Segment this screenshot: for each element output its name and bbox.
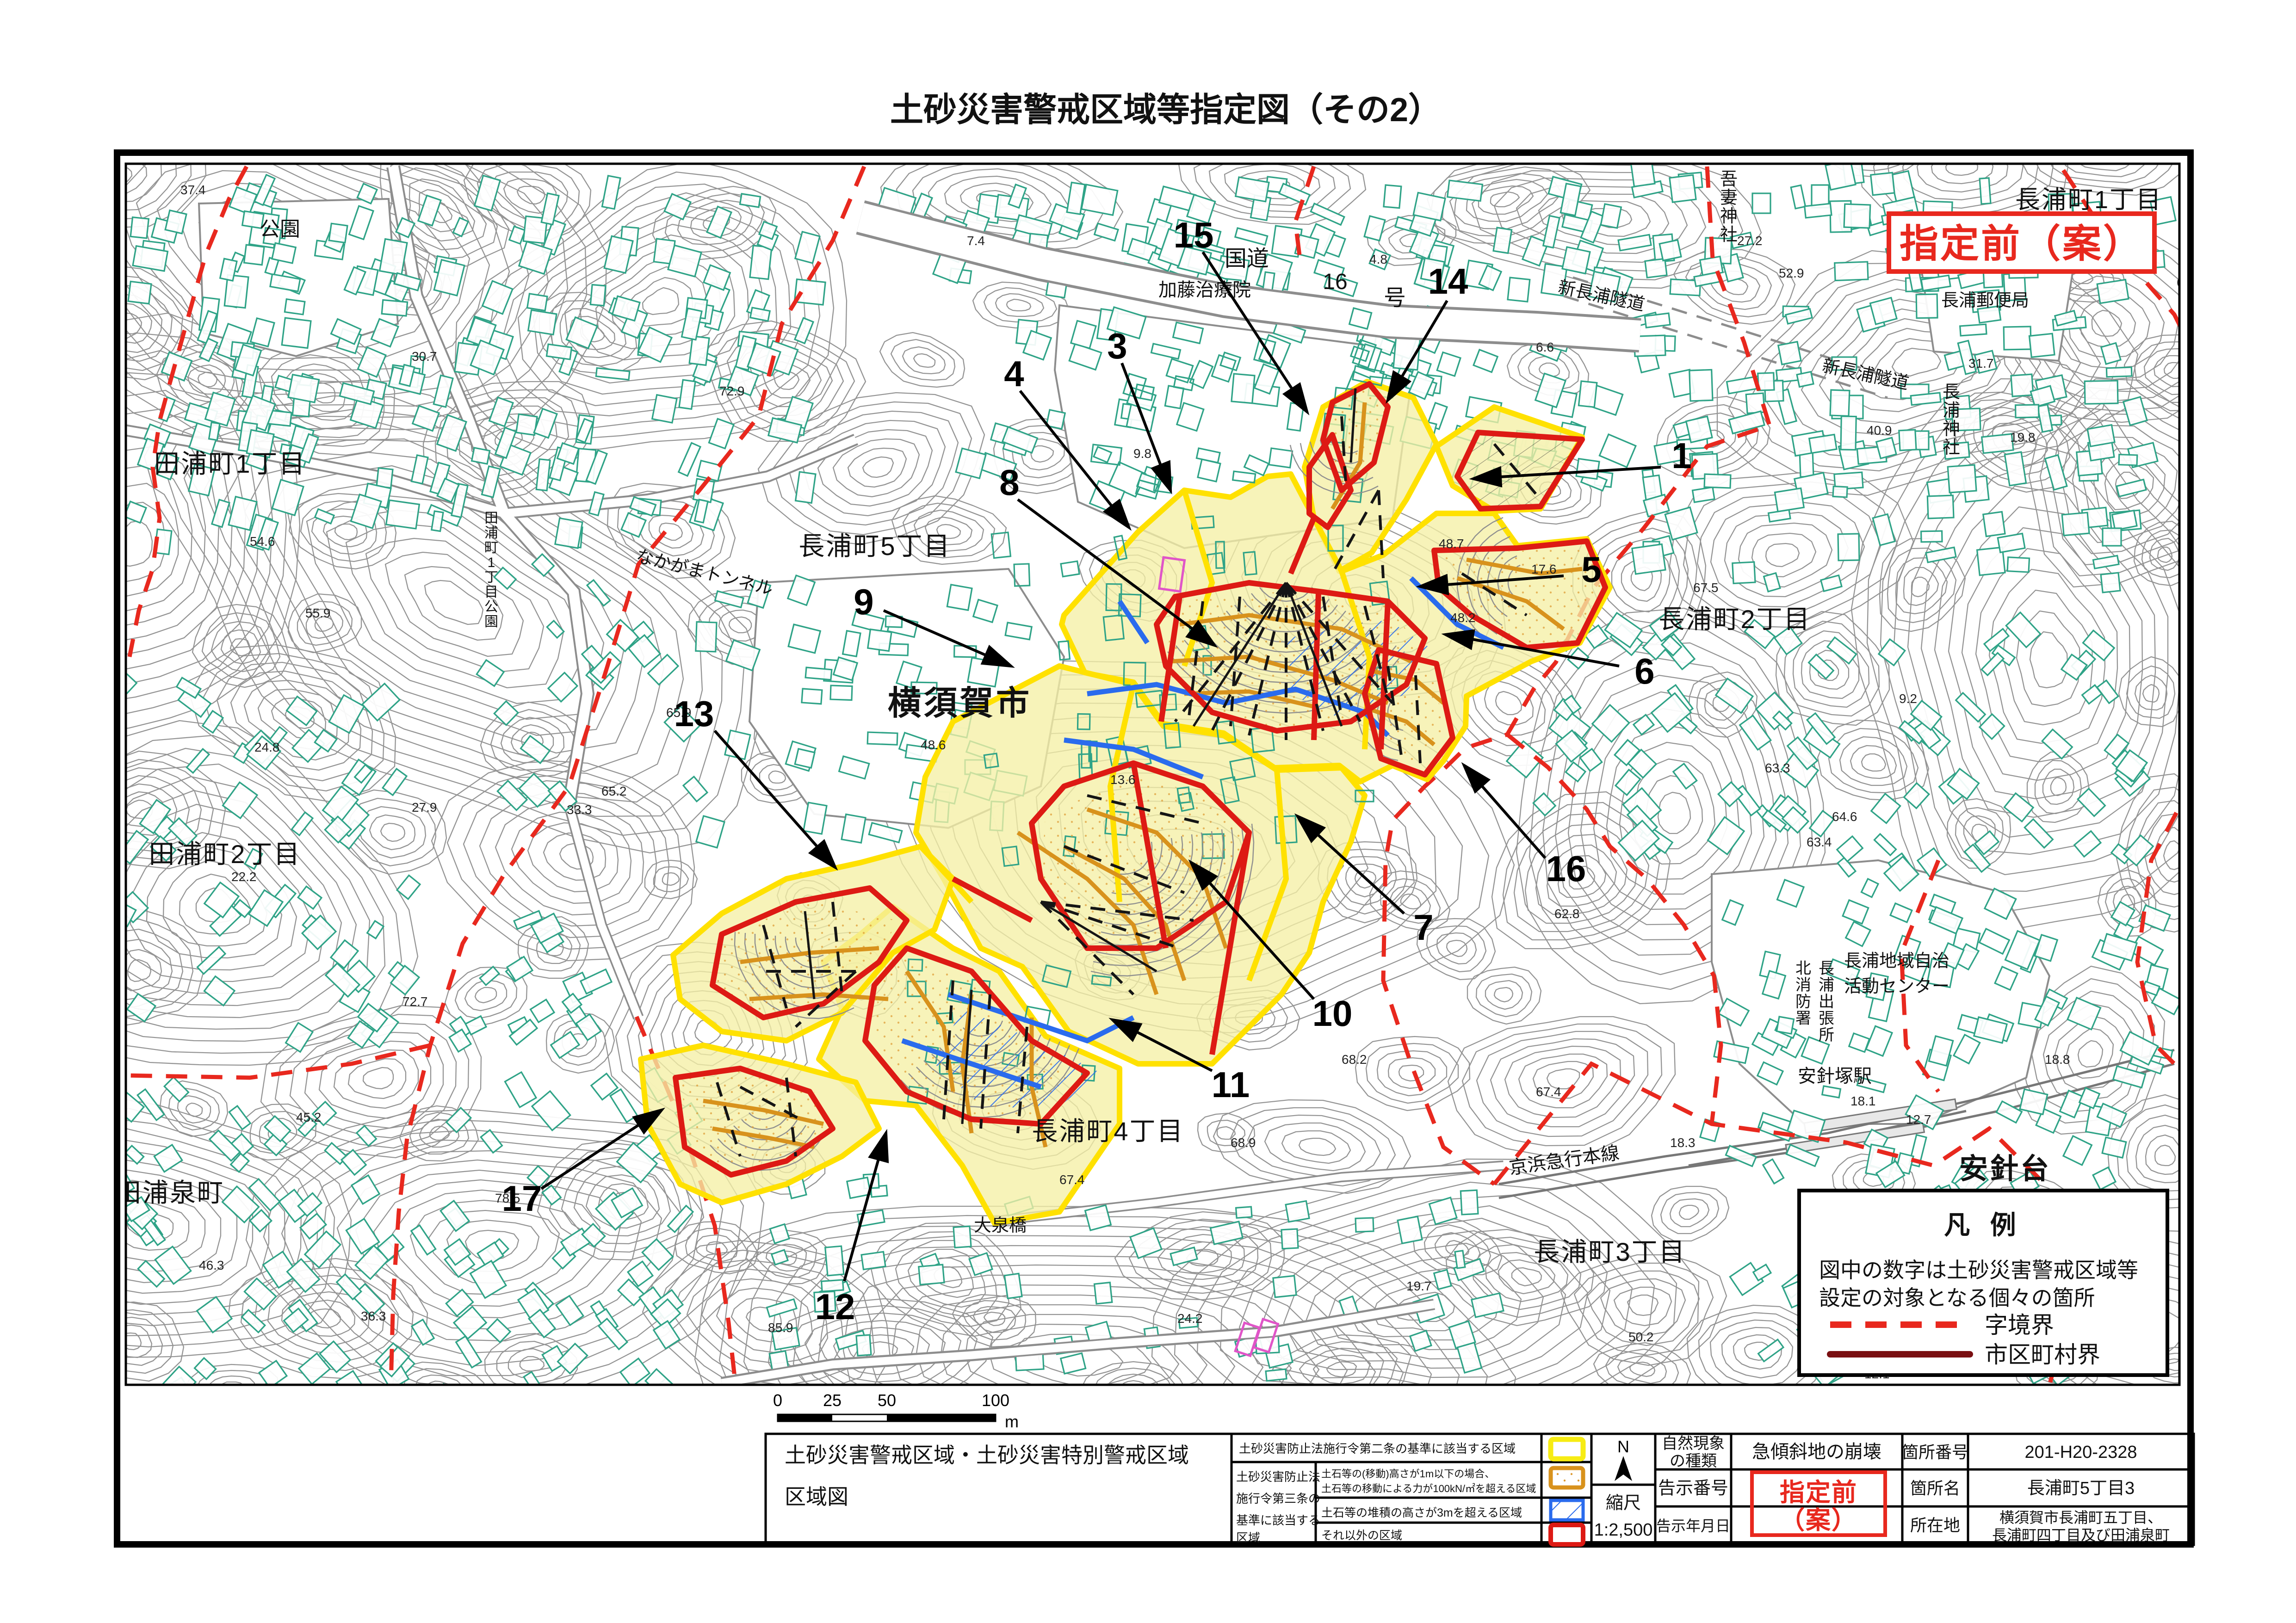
svg-text:区域: 区域 — [1236, 1531, 1260, 1545]
svg-text:6.6: 6.6 — [1536, 340, 1554, 354]
svg-text:63.4: 63.4 — [1807, 835, 1832, 849]
svg-text:48.6: 48.6 — [921, 738, 946, 752]
svg-text:8: 8 — [999, 462, 1019, 503]
svg-text:100: 100 — [982, 1391, 1009, 1410]
svg-text:65.2: 65.2 — [601, 784, 627, 798]
svg-text:19.8: 19.8 — [2010, 430, 2036, 444]
svg-text:62.8: 62.8 — [1554, 907, 1580, 921]
svg-text:63.3: 63.3 — [1765, 761, 1790, 775]
svg-text:田浦町1丁目: 田浦町1丁目 — [154, 449, 306, 478]
svg-text:長浦町四丁目及び田浦泉町: 長浦町四丁目及び田浦泉町 — [1992, 1527, 2170, 1543]
svg-text:72.7: 72.7 — [402, 994, 428, 1009]
svg-text:7.4: 7.4 — [967, 234, 985, 248]
svg-text:告示番号: 告示番号 — [1658, 1479, 1728, 1498]
svg-text:N: N — [1617, 1437, 1629, 1456]
svg-text:55.9: 55.9 — [305, 606, 331, 620]
svg-text:27.9: 27.9 — [412, 800, 437, 815]
svg-text:施行令第三条の: 施行令第三条の — [1236, 1492, 1320, 1506]
svg-text:市区町村界: 市区町村界 — [1985, 1342, 2100, 1368]
svg-text:横須賀市: 横須賀市 — [888, 685, 1032, 722]
svg-text:37.4: 37.4 — [180, 183, 206, 197]
svg-text:加藤治療院: 加藤治療院 — [1158, 280, 1251, 300]
svg-text:40.9: 40.9 — [1867, 423, 1892, 438]
svg-text:33.3: 33.3 — [567, 802, 592, 817]
svg-text:4.8: 4.8 — [1369, 252, 1387, 266]
svg-text:0: 0 — [773, 1391, 782, 1410]
svg-text:4: 4 — [1004, 353, 1024, 394]
svg-text:長浦町1丁目: 長浦町1丁目 — [2015, 186, 2162, 214]
svg-text:9: 9 — [854, 581, 873, 622]
svg-text:54.6: 54.6 — [250, 534, 275, 549]
svg-text:48.2: 48.2 — [1450, 611, 1476, 625]
svg-text:27.2: 27.2 — [1737, 234, 1763, 248]
svg-text:12.7: 12.7 — [1906, 1112, 1931, 1127]
svg-text:9.8: 9.8 — [1133, 446, 1151, 461]
svg-text:土砂災害防止法施行令第二条の基準に該当する区域: 土砂災害防止法施行令第二条の基準に該当する区域 — [1239, 1442, 1516, 1456]
svg-text:48.7: 48.7 — [1439, 537, 1464, 551]
svg-text:長浦町5丁目: 長浦町5丁目 — [798, 531, 951, 561]
svg-text:北消防署: 北消防署 — [1795, 960, 1811, 1027]
svg-text:18.8: 18.8 — [2045, 1052, 2070, 1067]
svg-text:3: 3 — [1107, 326, 1127, 366]
svg-text:31.7: 31.7 — [1968, 356, 1994, 370]
svg-text:m: m — [1005, 1412, 1019, 1431]
svg-text:16: 16 — [1546, 848, 1586, 889]
svg-text:7: 7 — [1413, 907, 1433, 948]
svg-text:公園: 公園 — [260, 218, 300, 241]
svg-text:土石等の堆積の高さが3mを超える区域: 土石等の堆積の高さが3mを超える区域 — [1321, 1506, 1522, 1519]
svg-text:長浦出張所: 長浦出張所 — [1819, 960, 1834, 1044]
svg-text:土石等の移動による力が100kN/㎡を超える区域: 土石等の移動による力が100kN/㎡を超える区域 — [1321, 1483, 1536, 1494]
svg-text:土砂災害警戒区域・土砂災害特別警戒区域: 土砂災害警戒区域・土砂災害特別警戒区域 — [785, 1443, 1189, 1467]
svg-text:図中の数字は土砂災害警戒区域等: 図中の数字は土砂災害警戒区域等 — [1819, 1258, 2138, 1282]
svg-text:長浦町2丁目: 長浦町2丁目 — [1659, 605, 1811, 634]
svg-text:長浦地域自治: 長浦地域自治 — [1844, 951, 1949, 971]
svg-text:52.9: 52.9 — [1779, 266, 1804, 280]
svg-text:85.9: 85.9 — [768, 1321, 793, 1335]
svg-text:長浦郵便局: 長浦郵便局 — [1941, 291, 2029, 310]
svg-text:自然現象: 自然現象 — [1662, 1435, 1725, 1452]
svg-text:田浦町1丁目公園: 田浦町1丁目公園 — [484, 511, 498, 629]
svg-text:1:2,500: 1:2,500 — [1594, 1520, 1653, 1540]
svg-text:安針塚駅: 安針塚駅 — [1798, 1066, 1872, 1086]
svg-text:凡 例: 凡 例 — [1944, 1210, 2023, 1240]
svg-text:田浦町2丁目: 田浦町2丁目 — [149, 839, 301, 869]
svg-text:12: 12 — [815, 1286, 855, 1327]
svg-text:5: 5 — [1581, 549, 1601, 590]
svg-text:10: 10 — [1312, 993, 1353, 1034]
svg-text:50: 50 — [878, 1391, 896, 1410]
svg-text:25: 25 — [823, 1391, 842, 1410]
svg-text:指定前（案）: 指定前（案） — [1900, 222, 2144, 265]
svg-text:201-H20-2328: 201-H20-2328 — [2025, 1443, 2137, 1462]
svg-text:長浦町3丁目: 長浦町3丁目 — [1534, 1237, 1686, 1266]
svg-text:長浦町5丁目3: 長浦町5丁目3 — [2027, 1479, 2135, 1498]
svg-text:安針台: 安針台 — [1959, 1153, 2051, 1185]
svg-text:吾妻神社: 吾妻神社 — [1720, 170, 1738, 245]
svg-text:号: 号 — [1384, 286, 1406, 310]
svg-text:基準に該当する: 基準に該当する — [1236, 1513, 1320, 1527]
svg-text:13.6: 13.6 — [1110, 772, 1136, 787]
svg-text:大泉橋: 大泉橋 — [974, 1216, 1027, 1235]
svg-text:それ以外の区域: それ以外の区域 — [1321, 1529, 1402, 1542]
svg-text:告示年月日: 告示年月日 — [1656, 1518, 1730, 1534]
svg-text:67.4: 67.4 — [1536, 1085, 1561, 1099]
svg-text:長浦神社: 長浦神社 — [1943, 383, 1960, 457]
svg-text:活動センター: 活動センター — [1844, 977, 1949, 996]
svg-text:区域図: 区域図 — [785, 1485, 848, 1509]
svg-text:24.2: 24.2 — [1177, 1311, 1203, 1326]
svg-text:田浦泉町: 田浦泉町 — [115, 1178, 224, 1207]
svg-text:9.2: 9.2 — [1899, 691, 1917, 706]
svg-text:の種類: の種類 — [1670, 1452, 1717, 1470]
svg-text:急傾斜地の崩壊: 急傾斜地の崩壊 — [1752, 1442, 1881, 1462]
svg-text:67.4: 67.4 — [1059, 1173, 1085, 1187]
svg-text:45.2: 45.2 — [296, 1110, 322, 1124]
svg-text:1: 1 — [1671, 435, 1691, 476]
svg-text:11: 11 — [1212, 1064, 1250, 1105]
svg-text:設定の対象となる個々の箇所: 設定の対象となる個々の箇所 — [1819, 1286, 2095, 1310]
svg-text:19.7: 19.7 — [1406, 1279, 1432, 1293]
svg-text:（案）: （案） — [1780, 1506, 1857, 1534]
svg-text:50.2: 50.2 — [1628, 1330, 1654, 1344]
svg-text:字境界: 字境界 — [1985, 1312, 2054, 1338]
svg-text:16: 16 — [1323, 270, 1347, 294]
svg-text:64.6: 64.6 — [1832, 809, 1857, 824]
svg-text:長浦町4丁目: 長浦町4丁目 — [1032, 1117, 1184, 1146]
svg-text:15: 15 — [1174, 215, 1214, 255]
svg-text:土砂災害防止法: 土砂災害防止法 — [1236, 1470, 1320, 1484]
svg-text:土石等の(移動)高さが1m以下の場合、: 土石等の(移動)高さが1m以下の場合、 — [1321, 1468, 1495, 1480]
svg-text:土砂災害警戒区域等指定図（その2）: 土砂災害警戒区域等指定図（その2） — [890, 92, 1442, 129]
svg-text:国道: 国道 — [1225, 247, 1269, 271]
svg-text:72.9: 72.9 — [719, 384, 745, 398]
svg-text:所在地: 所在地 — [1910, 1516, 1960, 1535]
svg-text:24.8: 24.8 — [254, 740, 280, 754]
svg-text:箇所番号: 箇所番号 — [1902, 1443, 1968, 1462]
svg-text:68.2: 68.2 — [1342, 1052, 1367, 1067]
svg-text:36.3: 36.3 — [361, 1309, 386, 1323]
svg-text:縮尺: 縮尺 — [1606, 1493, 1641, 1513]
svg-text:13: 13 — [674, 693, 714, 734]
svg-text:17: 17 — [502, 1178, 542, 1219]
svg-text:18.3: 18.3 — [1670, 1135, 1696, 1150]
svg-text:46.3: 46.3 — [199, 1258, 224, 1272]
svg-text:6: 6 — [1634, 651, 1654, 691]
svg-text:68.9: 68.9 — [1231, 1135, 1256, 1150]
svg-text:箇所名: 箇所名 — [1910, 1479, 1960, 1498]
svg-text:14: 14 — [1428, 261, 1468, 302]
svg-text:22.2: 22.2 — [231, 870, 257, 884]
svg-text:30.7: 30.7 — [412, 349, 437, 364]
svg-text:67.5: 67.5 — [1693, 580, 1719, 595]
svg-text:横須賀市長浦町五丁目、: 横須賀市長浦町五丁目、 — [1999, 1509, 2162, 1526]
svg-text:18.1: 18.1 — [1850, 1094, 1876, 1108]
svg-text:指定前: 指定前 — [1780, 1479, 1857, 1506]
svg-text:17.6: 17.6 — [1531, 562, 1557, 576]
